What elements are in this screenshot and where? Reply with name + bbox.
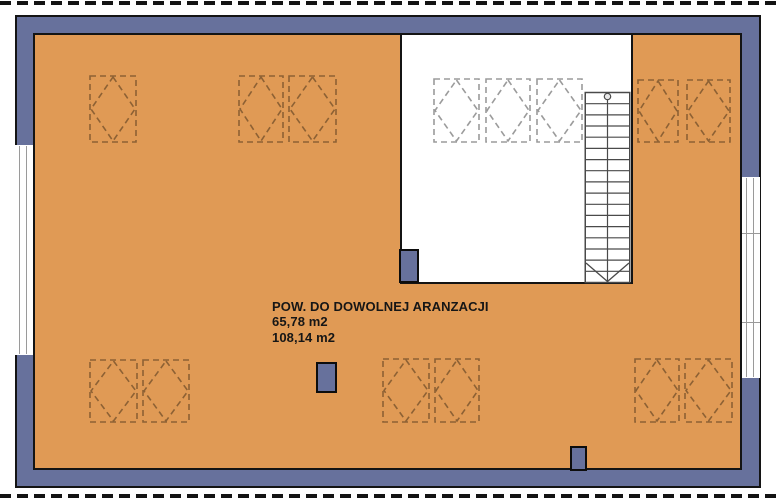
chimney-block <box>570 446 587 471</box>
room-area-value-2: 108,14 m2 <box>272 330 489 345</box>
window-glass-line <box>753 178 754 377</box>
sheet-border-bottom <box>0 494 780 498</box>
skylight-window-symbol <box>382 358 430 423</box>
skylight-window-symbol <box>684 358 733 423</box>
skylight-window-symbol <box>637 79 679 143</box>
room-area-value-1: 65,78 m2 <box>272 314 489 329</box>
skylight-window-symbol <box>89 75 137 143</box>
floor-plan-canvas: POW. DO DOWOLNEJ ARANZACJI 65,78 m2 108,… <box>0 0 780 503</box>
room-label-title: POW. DO DOWOLNEJ ARANZACJI <box>272 299 489 314</box>
staircase <box>584 91 631 285</box>
window-divider <box>742 233 760 234</box>
wall-window <box>742 177 760 378</box>
room-label: POW. DO DOWOLNEJ ARANZACJI 65,78 m2 108,… <box>272 299 489 345</box>
skylight-window-symbol <box>89 359 138 423</box>
skylight-window-symbol <box>634 358 680 423</box>
skylight-window-symbol <box>686 79 731 143</box>
window-glass-line <box>19 146 20 354</box>
chimney-block <box>316 362 337 393</box>
window-glass-line <box>26 146 27 354</box>
skylight-window-symbol <box>288 75 337 143</box>
chimney-block <box>399 249 419 283</box>
staircase-walkline-start-circle <box>604 93 610 99</box>
sheet-border-top <box>0 1 780 5</box>
skylight-window-symbol <box>433 78 480 143</box>
window-divider <box>742 322 760 323</box>
wall-window <box>15 145 33 355</box>
skylight-window-symbol <box>536 78 583 143</box>
skylight-window-symbol <box>485 78 531 143</box>
skylight-window-symbol <box>142 359 190 423</box>
window-glass-line <box>746 178 747 377</box>
skylight-window-symbol <box>434 358 480 423</box>
skylight-window-symbol <box>238 75 284 143</box>
